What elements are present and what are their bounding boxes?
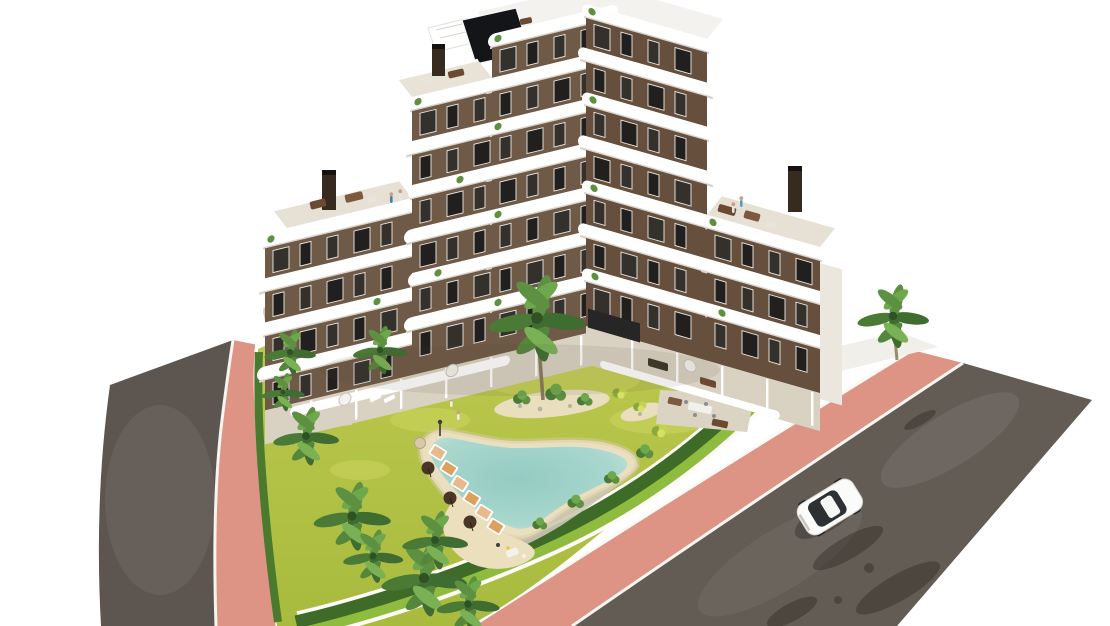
- window: [675, 312, 691, 340]
- window: [420, 241, 436, 267]
- window: [554, 77, 570, 103]
- window: [796, 258, 812, 285]
- window: [474, 186, 485, 211]
- window: [381, 222, 392, 247]
- window: [675, 268, 686, 293]
- window: [447, 191, 463, 217]
- window: [474, 272, 490, 298]
- window: [500, 223, 511, 248]
- chimney: [788, 168, 802, 212]
- window: [500, 178, 516, 204]
- window: [594, 200, 605, 225]
- window: [474, 98, 485, 123]
- window: [769, 250, 780, 275]
- gable-wall: [820, 263, 842, 405]
- window: [527, 85, 538, 110]
- window: [675, 136, 686, 161]
- window: [621, 120, 637, 147]
- window: [742, 287, 753, 312]
- window: [554, 166, 565, 191]
- window: [621, 208, 632, 233]
- window: [474, 140, 490, 166]
- building-shadow: [320, 344, 720, 396]
- window: [420, 287, 431, 312]
- window: [447, 236, 458, 261]
- window: [420, 155, 431, 180]
- window: [796, 302, 807, 327]
- window: [474, 230, 485, 255]
- window: [354, 272, 365, 297]
- window: [474, 318, 485, 344]
- window: [594, 112, 605, 137]
- window: [327, 235, 338, 260]
- window: [300, 241, 311, 266]
- chimney: [432, 46, 445, 76]
- window: [796, 346, 807, 372]
- window: [447, 280, 458, 305]
- render-stage: [0, 0, 1110, 626]
- road-left-wear: [105, 405, 215, 595]
- window: [648, 172, 659, 197]
- window: [769, 338, 780, 364]
- window: [300, 285, 311, 310]
- window: [354, 227, 370, 253]
- window: [715, 235, 731, 262]
- window: [527, 173, 538, 198]
- window: [594, 68, 605, 93]
- terrace-divider: [811, 392, 813, 427]
- window: [648, 304, 659, 330]
- paved-area-wall: [256, 306, 262, 352]
- window: [554, 34, 565, 59]
- window: [675, 48, 691, 75]
- parasol: [415, 438, 426, 449]
- window: [715, 323, 726, 349]
- window: [500, 135, 511, 160]
- window: [621, 252, 637, 279]
- window: [420, 199, 431, 224]
- scene-svg: [0, 0, 1110, 626]
- window: [648, 216, 664, 243]
- window: [715, 279, 726, 304]
- window: [621, 164, 632, 189]
- window: [447, 104, 458, 129]
- window: [594, 244, 605, 269]
- window: [354, 316, 365, 341]
- window: [648, 128, 659, 153]
- window: [769, 294, 785, 321]
- window: [420, 109, 436, 135]
- window: [648, 84, 664, 111]
- window: [500, 46, 516, 72]
- window: [554, 122, 565, 147]
- window: [527, 128, 543, 154]
- window: [594, 24, 610, 51]
- window: [675, 224, 686, 249]
- window: [554, 209, 570, 235]
- window: [527, 41, 538, 66]
- window: [742, 243, 753, 268]
- window: [648, 260, 659, 285]
- window: [621, 296, 632, 322]
- window: [621, 76, 632, 101]
- window: [648, 40, 659, 65]
- window: [675, 92, 686, 117]
- window: [594, 156, 610, 183]
- window: [500, 267, 511, 292]
- window: [327, 278, 343, 304]
- window: [273, 292, 284, 317]
- window: [675, 180, 691, 207]
- window: [381, 266, 392, 291]
- person: [457, 411, 461, 420]
- window: [327, 323, 338, 348]
- window: [621, 32, 632, 57]
- window: [500, 91, 511, 116]
- window: [447, 148, 458, 173]
- window: [527, 217, 538, 242]
- window: [742, 331, 758, 359]
- window: [554, 254, 565, 279]
- window: [273, 247, 289, 273]
